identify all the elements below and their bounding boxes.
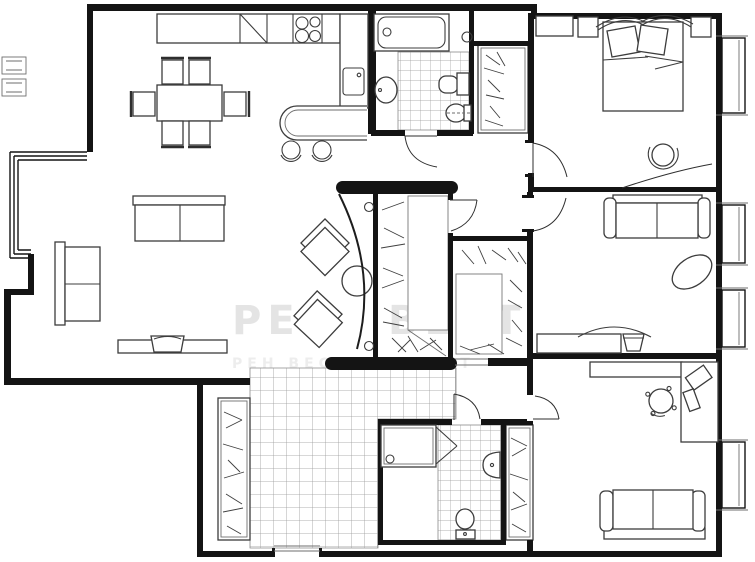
bay-window-left [10, 152, 87, 258]
wardrobe-hall [218, 398, 250, 540]
bar-stools [281, 141, 332, 161]
double-bed [596, 15, 693, 111]
floor-plan-canvas: РЕН ВЕСТ РЕН ВЕСТ РЕН ВЕСТ [0, 0, 755, 562]
armchair-1 [297, 219, 354, 276]
tv-bench [118, 336, 227, 353]
bidet [446, 104, 471, 122]
nightstand-left [578, 17, 598, 37]
sofa-main [133, 196, 225, 241]
door-bedroom1 [533, 143, 567, 177]
toilet-top [439, 73, 469, 95]
door-lounge [533, 198, 566, 231]
pedestal-sink [375, 77, 397, 103]
kitchen-counter [157, 14, 340, 43]
door-bathroom2 [454, 394, 480, 420]
round-chair [648, 144, 678, 169]
door-slider-bedroom1 [622, 164, 712, 188]
exterior-marks-left [2, 57, 26, 96]
door-office [533, 396, 559, 419]
door-closet-center [450, 200, 477, 231]
coffee-table [342, 266, 372, 296]
dresser [536, 16, 573, 36]
office-chair [645, 386, 677, 419]
toilet-bottom [456, 509, 475, 539]
dining-table [157, 85, 222, 121]
pouf [666, 248, 718, 296]
wardrobe-office [506, 425, 533, 540]
sofa-lounge [604, 195, 710, 238]
bathtub [374, 14, 449, 51]
door-bathroom1 [405, 136, 437, 167]
nightstand-right [691, 17, 711, 37]
wardrobe-top [478, 45, 528, 133]
sofa-office [600, 490, 705, 539]
sofa-left [55, 242, 100, 325]
vanity-table [537, 327, 651, 353]
